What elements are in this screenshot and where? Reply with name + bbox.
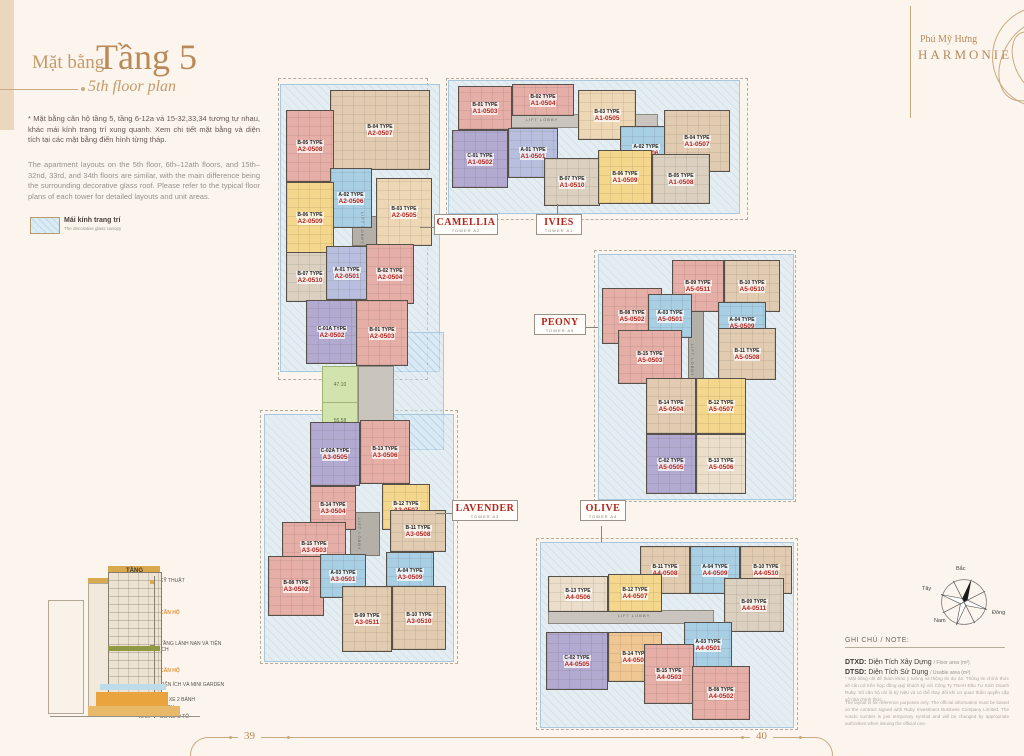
unit-code-label: A3-0505 — [322, 454, 349, 461]
unit-code-label: A3-0510 — [406, 618, 433, 625]
elevation-amenity-band — [100, 684, 166, 690]
elevation-floor-label: ĐỖ XE 2 BÁNH — [160, 697, 226, 703]
elevation-refuge-band — [108, 646, 160, 651]
page-title-sub: 5th floor plan — [88, 78, 176, 96]
tower-label-ivies: IVIESTOWER A1 — [536, 214, 582, 235]
unit-code-label: A1-0509 — [612, 177, 639, 184]
ivies-lift-lobby-label: LIFT LOBBY — [512, 117, 572, 122]
elevation-base — [88, 706, 180, 716]
tag-connector — [436, 513, 452, 514]
unit-code-label: A4-0505 — [564, 661, 591, 668]
page-frame-corner-right — [806, 737, 833, 756]
dtsd-note-row: DTSD: Diện Tích Sử Dụng / Usable area (m… — [845, 661, 970, 679]
camellia-lift-lobby-label: LIFT LOBBY — [360, 198, 365, 258]
unit-code-label: A5-0510 — [739, 286, 766, 293]
compass-south-label: Nam — [934, 618, 946, 624]
glass-canopy-legend-swatch — [30, 217, 60, 234]
page-number-dot — [741, 736, 744, 739]
unit-code-label: A4-0511 — [741, 605, 768, 612]
page-number-right: 40 — [750, 730, 773, 742]
unit-code-label: A3-0508 — [405, 531, 432, 538]
unit-A4-0503: B-15 TYPEA4-0503 — [644, 644, 694, 704]
compass-east-label: Đông — [992, 610, 1005, 616]
unit-A2-0504: B-02 TYPEA2-0504 — [366, 244, 414, 304]
intro-paragraph-vi: * Mặt bằng căn hộ tầng 5, tầng 6-12a và … — [28, 114, 260, 146]
dtsd-label-en: / Usable area (m²) — [930, 670, 970, 676]
unit-code-label: A1-0501 — [520, 153, 547, 160]
unit-A4-0505: C-02 TYPEA4-0505 — [546, 632, 608, 690]
unit-code-label: A5-0506 — [708, 464, 735, 471]
unit-code-label: A4-0503 — [656, 674, 683, 681]
unit-A2-0505: B-03 TYPEA2-0505 — [376, 178, 432, 246]
elevation-floor-label: CĂN HỘ — [160, 668, 226, 674]
unit-code-label: A3-0509 — [397, 574, 424, 581]
unit-A5-0508: B-11 TYPEA5-0508 — [718, 328, 776, 380]
tower-label-camellia: CAMELLIATOWER A2 — [434, 214, 498, 235]
unit-code-label: A5-0503 — [637, 357, 664, 364]
unit-A4-0507: B-12 TYPEA4-0507 — [608, 574, 662, 612]
unit-code-label: A3-0502 — [283, 586, 310, 593]
compass-north-label: Bắc — [956, 566, 965, 572]
unit-A1-0510: B-07 TYPEA1-0510 — [544, 158, 600, 206]
tag-connector — [584, 327, 598, 328]
elevation-tick — [150, 580, 154, 584]
unit-A2-0502: C-01A TYPEA2-0502 — [306, 300, 358, 364]
unit-code-label: A2-0504 — [377, 274, 404, 281]
tower-label-lavender: LAVENDERTOWER A3 — [452, 500, 518, 521]
elevation-tower-back — [48, 600, 84, 714]
unit-A3-0508: B-11 TYPEA3-0508 — [390, 510, 446, 552]
unit-code-label: A2-0503 — [369, 333, 396, 340]
unit-code-label: A2-0508 — [297, 146, 324, 153]
title-underline-dot — [81, 87, 85, 91]
unit-A3-0510: B-10 TYPEA3-0510 — [392, 586, 446, 650]
unit-code-label: A5-0505 — [658, 464, 685, 471]
garden-area-value: 47.10 — [334, 382, 347, 388]
elevation-floor-label: CĂN HỘ — [160, 610, 226, 616]
unit-A1-0508: B-05 TYPEA1-0508 — [652, 154, 710, 204]
left-accent-bar — [0, 0, 14, 130]
unit-code-label: A4-0506 — [565, 594, 592, 601]
title-underline — [0, 89, 78, 90]
unit-A4-0511: B-09 TYPEA4-0511 — [724, 578, 784, 632]
unit-code-label: A1-0505 — [594, 115, 621, 122]
intro-paragraph-en: The apartment layouts on the 5th floor, … — [28, 160, 260, 202]
page-title: Tầng 5 — [96, 36, 197, 78]
brochure-page: Mặt bằng Tầng 5 5th floor plan * Mặt bằn… — [0, 0, 1024, 756]
page-frame-line — [208, 737, 812, 738]
tower-label-peony: PEONYTOWER A5 — [534, 314, 586, 335]
unit-A2-0509: B-06 TYPEA2-0509 — [286, 182, 334, 254]
unit-A3-0502: B-08 TYPEA3-0502 — [268, 556, 324, 616]
elevation-floor-label: KỸ THUẬT — [160, 578, 226, 584]
unit-A2-0506: A-02 TYPEA2-0506 — [330, 168, 372, 228]
garden-area-cell: 47.10 — [322, 366, 358, 404]
unit-A2-0508: B-05 TYPEA2-0508 — [286, 110, 334, 182]
unit-code-label: A4-0509 — [702, 570, 729, 577]
page-frame-corner-left — [190, 737, 217, 756]
dtsd-label-vi: Diện Tích Sử Dụng — [868, 669, 928, 676]
page-number-left: 39 — [238, 730, 261, 742]
unit-A2-0503: B-01 TYPEA2-0503 — [356, 300, 408, 366]
lavender-lift-lobby-label: LIFT LOBBY — [357, 514, 362, 554]
page-number-dot — [799, 736, 802, 739]
unit-A3-0511: B-09 TYPEA3-0511 — [342, 586, 392, 652]
unit-code-label: A4-0502 — [708, 693, 735, 700]
dtsd-abbr: DTSD: — [845, 669, 866, 676]
page-number-dot — [287, 736, 290, 739]
unit-code-label: A3-0504 — [320, 508, 347, 515]
elevation-ground-line — [50, 716, 200, 717]
unit-A5-0505: C-02 TYPEA5-0505 — [646, 434, 696, 494]
unit-code-label: A2-0502 — [319, 332, 346, 339]
unit-code-label: A1-0510 — [559, 182, 586, 189]
unit-code-label: A3-0506 — [372, 452, 399, 459]
unit-code-label: A1-0502 — [467, 159, 494, 166]
unit-A4-0506: B-13 TYPEA4-0506 — [548, 576, 608, 612]
unit-A5-0504: B-14 TYPEA5-0504 — [646, 378, 696, 434]
unit-A1-0502: C-01 TYPEA1-0502 — [452, 130, 508, 188]
unit-A5-0503: B-15 TYPEA5-0503 — [618, 330, 682, 384]
elevation-header: TẦNG — [126, 568, 143, 574]
unit-code-label: A5-0501 — [657, 316, 684, 323]
unit-code-label: A1-0503 — [472, 108, 499, 115]
legend-label-vi: Mái kính trang trí — [64, 217, 120, 224]
unit-A1-0503: B-01 TYPEA1-0503 — [458, 86, 512, 130]
elevation-floor-label: TẦNG LÁNH NẠN VÀ TIỆN ÍCH — [160, 641, 226, 654]
brand-divider-line — [910, 6, 911, 118]
unit-code-label: A3-0501 — [330, 576, 357, 583]
unit-A5-0507: B-12 TYPEA5-0507 — [696, 378, 746, 434]
tag-connector — [601, 526, 602, 542]
peony-lift-lobby-label: LIFT LOBBY — [690, 330, 695, 390]
unit-A2-0507: B-04 TYPEA2-0507 — [330, 90, 430, 170]
unit-A3-0506: B-13 TYPEA3-0506 — [360, 420, 410, 484]
unit-code-label: A2-0507 — [367, 130, 394, 137]
unit-A1-0509: B-06 TYPEA1-0509 — [598, 150, 652, 204]
page-number-dot — [229, 736, 232, 739]
unit-code-label: A5-0507 — [708, 406, 735, 413]
unit-A3-0505: C-02A TYPEA3-0505 — [310, 422, 360, 486]
unit-code-label: A1-0507 — [684, 141, 711, 148]
unit-A1-0504: B-02 TYPEA1-0504 — [512, 84, 574, 116]
tag-connector — [420, 227, 434, 228]
disclaimer-en: The layout is for reference purposes onl… — [845, 700, 1009, 728]
legend-label-en: The decorative glass canopy — [64, 226, 121, 231]
unit-code-label: A3-0511 — [354, 619, 381, 626]
unit-code-label: A2-0501 — [334, 273, 361, 280]
tower-label-olive: OLIVETOWER A4 — [580, 500, 626, 521]
unit-code-label: A2-0510 — [297, 277, 324, 284]
unit-code-label: A4-0507 — [622, 593, 649, 600]
elevation-podium — [96, 692, 168, 706]
unit-A4-0502: B-08 TYPEA4-0502 — [692, 666, 750, 720]
unit-code-label: A2-0509 — [297, 218, 324, 225]
unit-code-label: A1-0504 — [530, 100, 557, 107]
unit-A5-0506: B-13 TYPEA5-0506 — [696, 434, 746, 494]
tag-connector — [557, 204, 558, 214]
unit-code-label: A5-0502 — [619, 316, 646, 323]
notes-header: GHI CHÚ / NOTE: — [845, 637, 1005, 648]
unit-code-label: A4-0501 — [695, 645, 722, 652]
olive-lift-lobby-label: LIFT LOBBY — [604, 613, 664, 618]
unit-code-label: A3-0503 — [301, 547, 328, 554]
compass-west-label: Tây — [922, 586, 931, 592]
unit-code-label: A2-0505 — [391, 212, 418, 219]
unit-code-label: A4-0510 — [753, 570, 780, 577]
unit-code-label: A5-0504 — [658, 406, 685, 413]
elevation-floor-label: TIỆN ÍCH VÀ MINI GARDEN — [160, 682, 226, 688]
unit-code-label: A5-0511 — [685, 286, 712, 293]
unit-code-label: A1-0508 — [668, 179, 695, 186]
unit-code-label: A5-0508 — [734, 354, 761, 361]
brand-name: Phú Mỹ Hưng — [920, 34, 977, 45]
page-title-prefix: Mặt bằng — [32, 52, 104, 74]
